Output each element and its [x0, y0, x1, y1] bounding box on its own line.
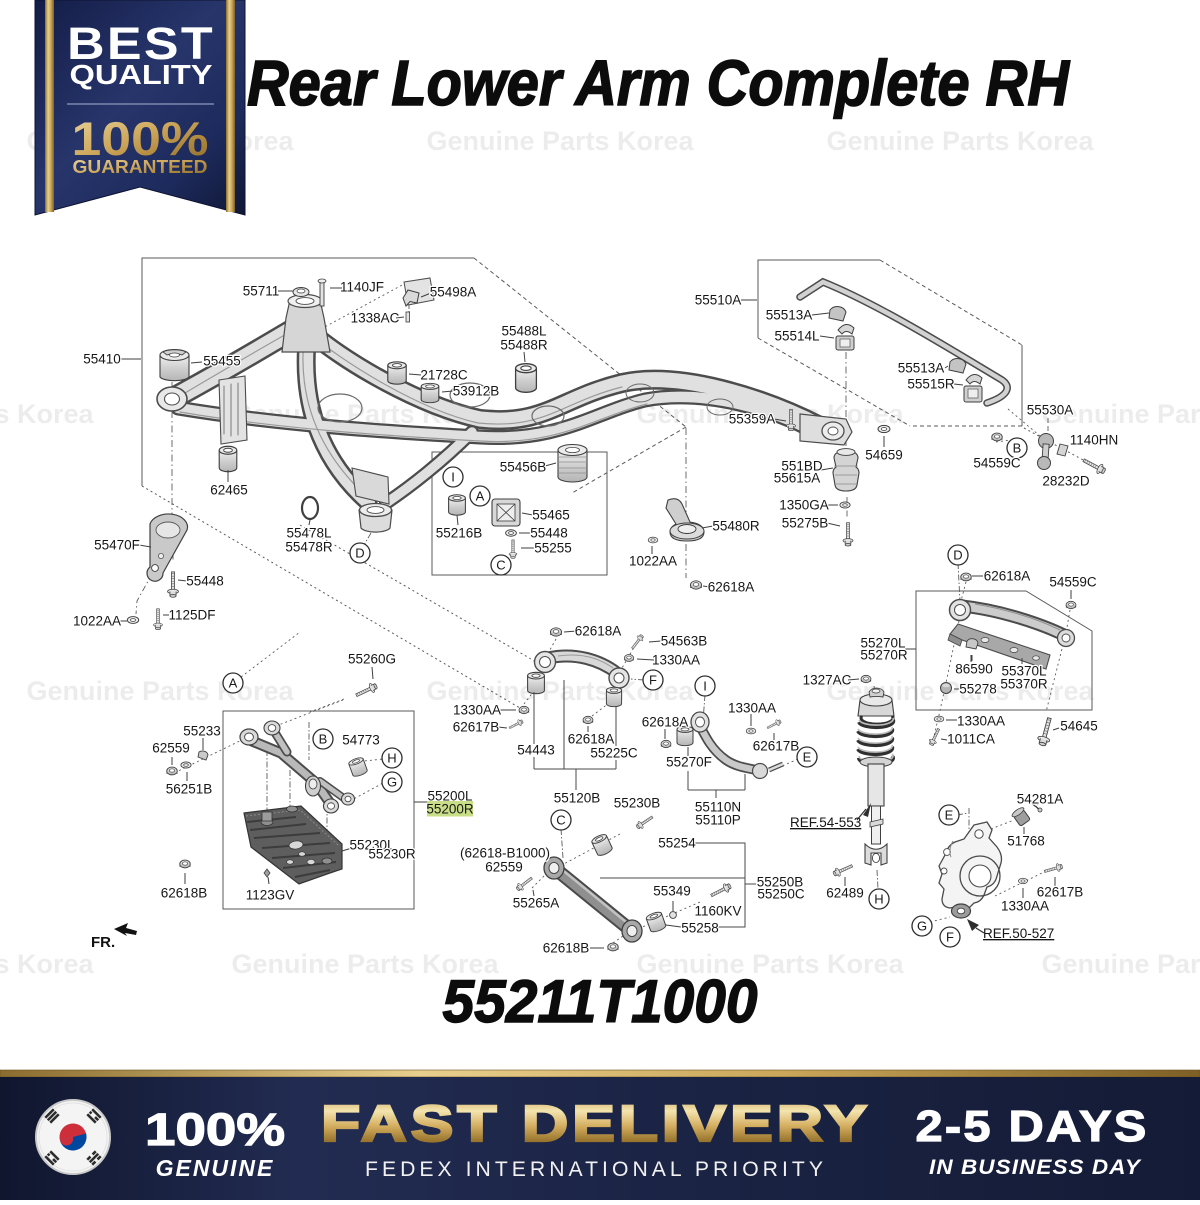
svg-text:55513A: 55513A [898, 361, 945, 376]
svg-text:55359A: 55359A [729, 412, 776, 427]
svg-text:54443: 54443 [517, 743, 555, 758]
svg-text:C: C [556, 813, 565, 828]
svg-text:55470F: 55470F [94, 538, 140, 553]
svg-text:62618B: 62618B [543, 941, 590, 956]
svg-text:56251B: 56251B [166, 782, 213, 797]
svg-text:55349: 55349 [653, 884, 691, 899]
svg-text:FEDEX INTERNATIONAL PRIORITY: FEDEX INTERNATIONAL PRIORITY [365, 1158, 827, 1181]
svg-text:54281A: 54281A [1017, 792, 1064, 807]
svg-text:I: I [451, 470, 455, 485]
svg-text:55230R: 55230R [368, 847, 416, 862]
svg-text:D: D [953, 548, 962, 563]
svg-text:1330AA: 1330AA [453, 703, 501, 718]
svg-text:A: A [476, 489, 485, 504]
svg-text:54773: 54773 [342, 733, 380, 748]
svg-text:1330AA: 1330AA [652, 653, 700, 668]
svg-text:62618A: 62618A [568, 732, 615, 747]
svg-text:55448: 55448 [186, 574, 224, 589]
svg-text:100%: 100% [145, 1104, 285, 1155]
svg-text:55270F: 55270F [666, 755, 712, 770]
svg-text:62618A: 62618A [708, 580, 755, 595]
svg-text:55615A: 55615A [774, 471, 821, 486]
svg-text:55370R: 55370R [1000, 677, 1048, 692]
svg-text:55488R: 55488R [500, 338, 548, 353]
svg-text:F: F [649, 673, 657, 688]
svg-text:E: E [945, 808, 954, 823]
svg-text:1022AA: 1022AA [73, 614, 121, 629]
svg-text:21728C: 21728C [420, 368, 468, 383]
svg-text:62617B: 62617B [1037, 885, 1084, 900]
svg-text:55250C: 55250C [757, 887, 805, 902]
svg-text:55110P: 55110P [695, 813, 741, 828]
svg-text:86590: 86590 [955, 662, 993, 677]
svg-text:28232D: 28232D [1042, 474, 1090, 489]
svg-text:55275B: 55275B [782, 516, 829, 531]
svg-text:QUALITY: QUALITY [70, 59, 213, 90]
svg-text:62617B: 62617B [453, 720, 500, 735]
svg-text:REF.54-553: REF.54-553 [790, 815, 861, 830]
svg-text:62618B: 62618B [161, 886, 208, 901]
svg-text:1330AA: 1330AA [728, 701, 776, 716]
svg-text:55478R: 55478R [285, 540, 333, 555]
svg-text:IN BUSINESS DAY: IN BUSINESS DAY [929, 1156, 1142, 1179]
svg-text:1160KV: 1160KV [694, 904, 741, 919]
svg-text:55410: 55410 [83, 352, 121, 367]
svg-text:55260G: 55260G [348, 652, 396, 667]
svg-text:55498A: 55498A [430, 285, 477, 300]
svg-text:55513A: 55513A [766, 308, 813, 323]
svg-text:1123GV: 1123GV [246, 888, 295, 903]
svg-text:H: H [387, 751, 396, 766]
svg-text:55514L: 55514L [774, 329, 820, 344]
svg-text:B: B [1013, 441, 1022, 456]
svg-text:G: G [387, 775, 397, 790]
svg-text:GENUINE: GENUINE [156, 1155, 275, 1181]
svg-text:REF.50-527: REF.50-527 [983, 926, 1054, 941]
svg-text:51768: 51768 [1007, 834, 1045, 849]
svg-text:55278: 55278 [959, 682, 997, 697]
svg-text:2-5 DAYS: 2-5 DAYS [916, 1102, 1149, 1151]
svg-text:H: H [874, 892, 883, 907]
svg-text:C: C [496, 558, 505, 573]
svg-text:Genuine Parts Korea: Genuine Parts Korea [0, 399, 95, 429]
svg-text:54559C: 54559C [1049, 575, 1097, 590]
svg-text:A: A [229, 676, 238, 691]
svg-text:55270R: 55270R [860, 648, 908, 663]
svg-text:55448: 55448 [530, 526, 568, 541]
svg-text:53912B: 53912B [453, 384, 500, 399]
svg-text:F: F [946, 930, 954, 945]
svg-text:1140HN: 1140HN [1070, 433, 1119, 448]
svg-text:GUARANTEED: GUARANTEED [73, 157, 208, 177]
svg-text:55465: 55465 [532, 508, 570, 523]
svg-text:62618A: 62618A [642, 715, 689, 730]
svg-text:62618A: 62618A [984, 569, 1031, 584]
svg-text:55530A: 55530A [1027, 403, 1074, 418]
svg-text:55455: 55455 [203, 354, 241, 369]
svg-text:55233: 55233 [183, 724, 221, 739]
svg-text:B: B [319, 732, 328, 747]
svg-text:54563B: 54563B [661, 634, 708, 649]
svg-text:D: D [355, 546, 364, 561]
svg-text:55515R: 55515R [907, 377, 955, 392]
svg-text:55120B: 55120B [554, 791, 601, 806]
svg-text:1125DF: 1125DF [168, 608, 215, 623]
svg-text:55211T1000: 55211T1000 [443, 968, 758, 1035]
svg-text:FAST DELIVERY: FAST DELIVERY [321, 1095, 871, 1152]
svg-text:55456B: 55456B [500, 460, 547, 475]
svg-text:55254: 55254 [658, 836, 696, 851]
svg-text:55255: 55255 [534, 541, 572, 556]
svg-text:62559: 62559 [152, 741, 190, 756]
svg-text:55230B: 55230B [614, 796, 661, 811]
svg-text:1327AC: 1327AC [803, 673, 852, 688]
svg-text:55711: 55711 [243, 284, 280, 299]
svg-text:1140JF: 1140JF [340, 280, 384, 295]
svg-text:54645: 54645 [1060, 719, 1098, 734]
svg-text:62489: 62489 [826, 886, 864, 901]
svg-text:I: I [703, 679, 707, 694]
svg-text:55200R: 55200R [426, 802, 474, 817]
svg-text:55265A: 55265A [513, 896, 560, 911]
svg-text:1330AA: 1330AA [1001, 899, 1049, 914]
svg-text:Genuine Parts Korea: Genuine Parts Korea [426, 126, 694, 156]
svg-text:1022AA: 1022AA [629, 554, 677, 569]
svg-text:Rear Lower Arm Complete RH: Rear Lower Arm Complete RH [247, 47, 1071, 119]
svg-text:G: G [917, 919, 927, 934]
svg-text:FR.: FR. [91, 934, 115, 951]
svg-text:55225C: 55225C [590, 746, 638, 761]
svg-text:1350GA: 1350GA [779, 498, 829, 513]
svg-text:62618A: 62618A [575, 624, 622, 639]
svg-text:Genuine Parts Korea: Genuine Parts Korea [826, 126, 1094, 156]
svg-text:1330AA: 1330AA [957, 714, 1005, 729]
svg-text:55480R: 55480R [712, 519, 760, 534]
svg-text:E: E [803, 750, 812, 765]
svg-text:1011CA: 1011CA [947, 732, 995, 747]
svg-text:1338AC: 1338AC [351, 311, 400, 326]
svg-text:55258: 55258 [681, 921, 719, 936]
svg-text:Genuine Parts Korea: Genuine Parts Korea [0, 949, 95, 979]
svg-text:62559: 62559 [485, 860, 523, 875]
svg-text:55510A: 55510A [695, 293, 742, 308]
svg-text:55478L: 55478L [286, 526, 332, 541]
svg-text:62465: 62465 [210, 483, 248, 498]
svg-text:(62618-B1000): (62618-B1000) [460, 846, 550, 861]
svg-text:Genuine Parts Korea: Genuine Parts Korea [1041, 949, 1200, 979]
svg-text:55488L: 55488L [501, 324, 547, 339]
svg-text:54659: 54659 [865, 448, 903, 463]
svg-text:54559C: 54559C [973, 456, 1021, 471]
svg-text:Genuine Parts Korea: Genuine Parts Korea [26, 676, 294, 706]
svg-text:62617B: 62617B [753, 739, 800, 754]
svg-text:55216B: 55216B [436, 526, 483, 541]
